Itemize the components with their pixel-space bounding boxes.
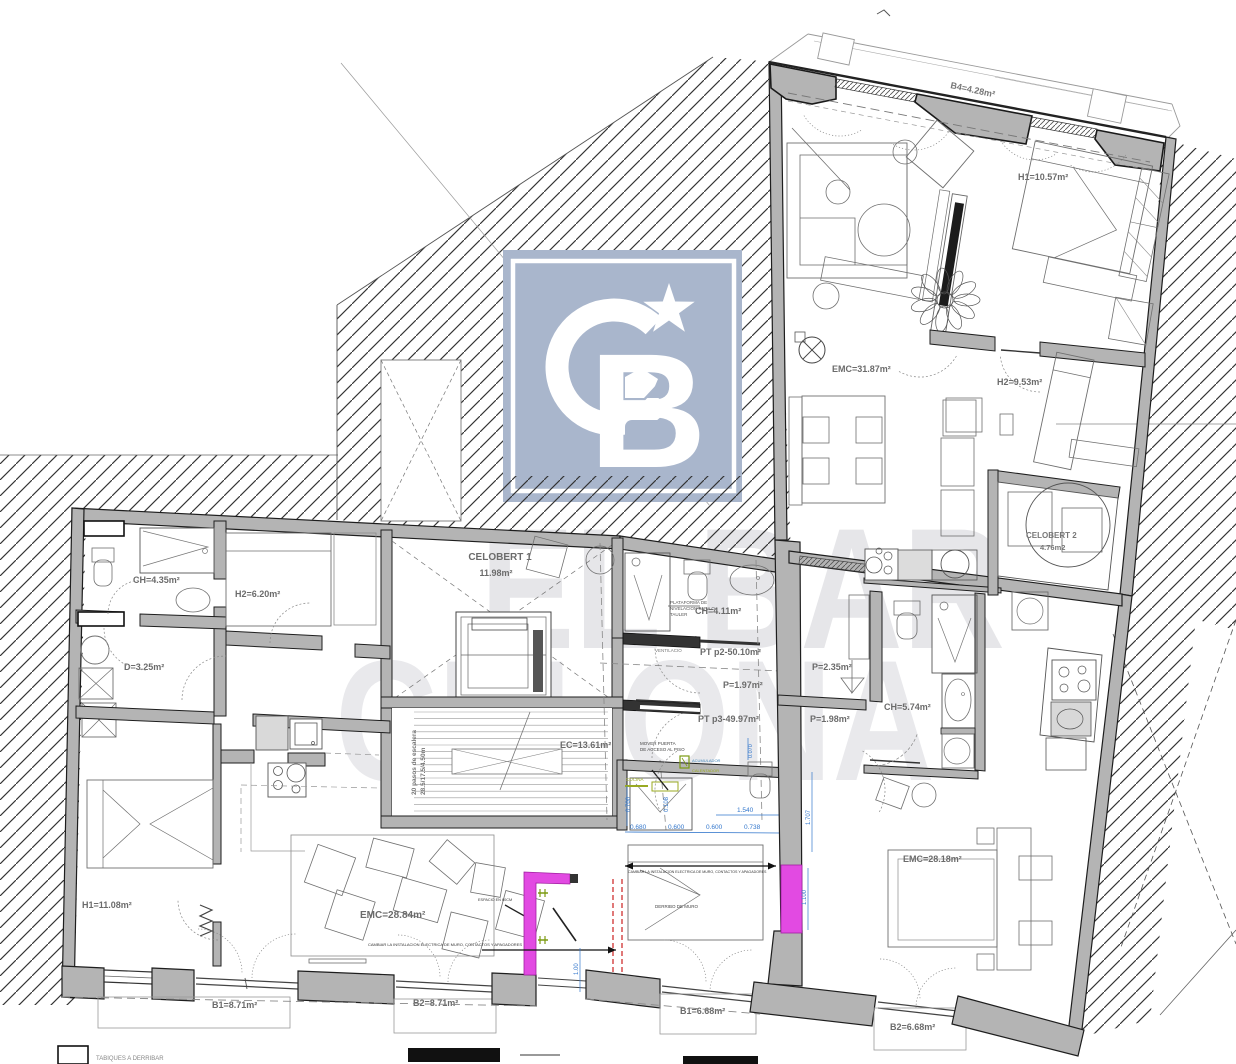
svg-text:ESPACIO EN 60CM: ESPACIO EN 60CM [478, 898, 512, 902]
svg-text:EMC=31.87m²: EMC=31.87m² [832, 364, 891, 374]
svg-text:28.5/17.5/4.50m: 28.5/17.5/4.50m [420, 747, 427, 795]
svg-text:PT p2-50.10m²: PT p2-50.10m² [700, 647, 761, 657]
svg-text:B: B [589, 319, 707, 502]
svg-text:H1=11.08m²: H1=11.08m² [82, 900, 132, 910]
svg-text:H1=10.57m²: H1=10.57m² [1018, 172, 1068, 182]
svg-text:1.707: 1.707 [806, 809, 812, 825]
svg-text:20 pasos de escalera: 20 pasos de escalera [411, 730, 418, 795]
svg-text:CH=4.35m²: CH=4.35m² [133, 575, 180, 585]
svg-text:EMC=28.84m²: EMC=28.84m² [360, 910, 426, 921]
svg-text:COCINA: COCINA [626, 777, 644, 782]
svg-text:P=2.35m²: P=2.35m² [812, 662, 852, 672]
svg-text:VENTILACIO: VENTILACIO [655, 648, 682, 653]
svg-text:MOVER PUERTA: MOVER PUERTA [640, 741, 676, 746]
svg-text:1.540: 1.540 [737, 807, 754, 814]
svg-text:4.76m2: 4.76m2 [1040, 543, 1065, 552]
svg-text:1.100: 1.100 [802, 889, 808, 905]
svg-text:PT p3-49.97m²: PT p3-49.97m² [698, 714, 759, 724]
svg-text:EMC=28.18m²: EMC=28.18m² [903, 854, 962, 864]
svg-text:CAMBIAR LA INSTALACION ELECTRI: CAMBIAR LA INSTALACION ELECTRICA DE MURO… [628, 870, 767, 874]
svg-text:B1=8.71m²: B1=8.71m² [212, 1000, 257, 1010]
svg-text:0.108: 0.108 [664, 796, 670, 812]
svg-text:CH=5.74m²: CH=5.74m² [884, 702, 931, 712]
svg-text:TAULER: TAULER [670, 612, 688, 617]
svg-text:0.680: 0.680 [630, 824, 647, 831]
svg-text:EC=13.61m²: EC=13.61m² [560, 740, 611, 750]
svg-text:0.738: 0.738 [744, 824, 761, 831]
svg-text:CH=4.11m²: CH=4.11m² [695, 606, 741, 616]
svg-text:TABIQUES A DERRIBAR: TABIQUES A DERRIBAR [96, 1056, 164, 1062]
svg-text:CAMBIAR LA INSTALACION ELECTRI: CAMBIAR LA INSTALACION ELECTRICA DE MURO… [368, 942, 522, 947]
svg-text:CALENTADOR: CALENTADOR [692, 768, 719, 773]
svg-text:H2=6.20m²: H2=6.20m² [235, 589, 280, 599]
svg-text:ACUMULADOR: ACUMULADOR [692, 758, 721, 763]
svg-text:DERRIBO DE MURO: DERRIBO DE MURO [655, 904, 699, 909]
svg-text:P=1.97m²: P=1.97m² [723, 680, 763, 690]
svg-text:B2=6.68m²: B2=6.68m² [890, 1022, 935, 1032]
svg-text:0.070: 0.070 [748, 744, 754, 758]
svg-text:CELOBERT 2: CELOBERT 2 [1026, 531, 1077, 540]
svg-text:B2=8.71m²: B2=8.71m² [413, 998, 458, 1008]
svg-text:0.600: 0.600 [668, 824, 685, 831]
svg-text:CELOBERT 1: CELOBERT 1 [468, 552, 532, 563]
svg-text:DE ACCESO AL PISO: DE ACCESO AL PISO [640, 747, 685, 752]
svg-text:11.98m²: 11.98m² [479, 568, 512, 578]
svg-text:PLATAFORMA DE: PLATAFORMA DE [670, 600, 707, 605]
svg-text:0.700: 0.700 [626, 796, 632, 812]
svg-text:B1=6.68m²: B1=6.68m² [680, 1006, 725, 1016]
svg-text:P=1.98m²: P=1.98m² [810, 714, 850, 724]
svg-text:1.00: 1.00 [574, 963, 580, 975]
svg-text:H2=9.53m²: H2=9.53m² [997, 377, 1042, 387]
svg-text:0.600: 0.600 [706, 824, 723, 831]
